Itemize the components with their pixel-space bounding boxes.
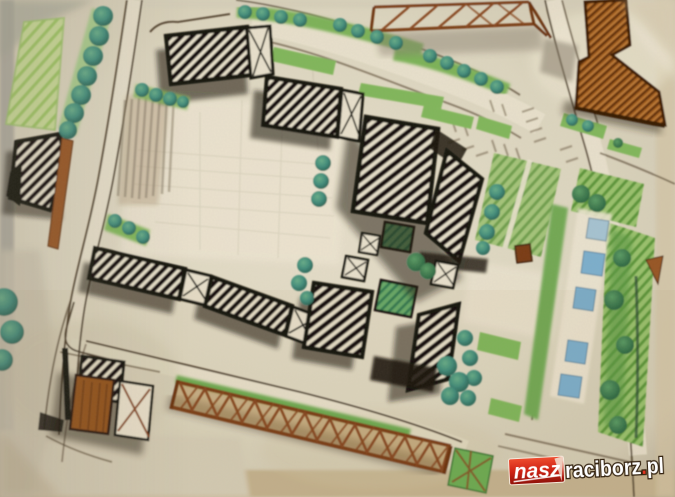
svg-text:nasz: nasz	[513, 458, 561, 483]
svg-text:raciborz.pl: raciborz.pl	[564, 453, 664, 483]
